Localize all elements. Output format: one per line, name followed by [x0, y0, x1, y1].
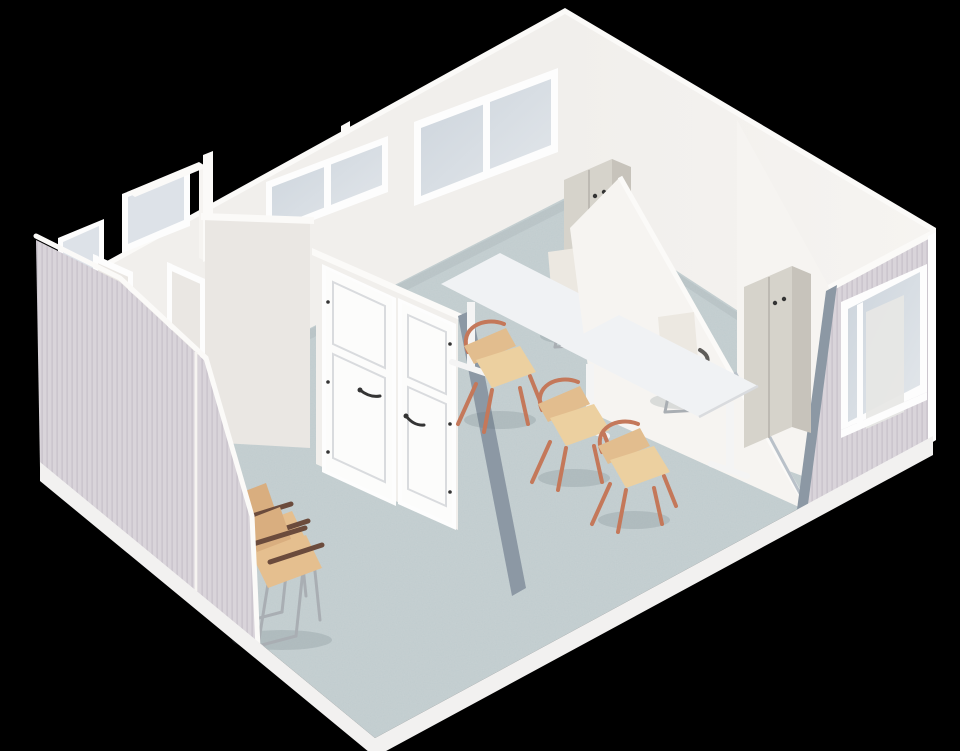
render-canvas: Isometric cutaway 3D architectural rende… — [0, 0, 960, 751]
corner-post — [928, 232, 936, 445]
isometric-office-render: Isometric cutaway 3D architectural rende… — [0, 0, 960, 751]
window-mullion — [857, 302, 863, 429]
glazed-band-mullion — [324, 163, 331, 211]
interior-door-2[interactable] — [398, 298, 456, 530]
window-mullion — [483, 100, 490, 176]
cabinet-right — [744, 266, 811, 448]
interior-door-1[interactable] — [322, 264, 396, 506]
